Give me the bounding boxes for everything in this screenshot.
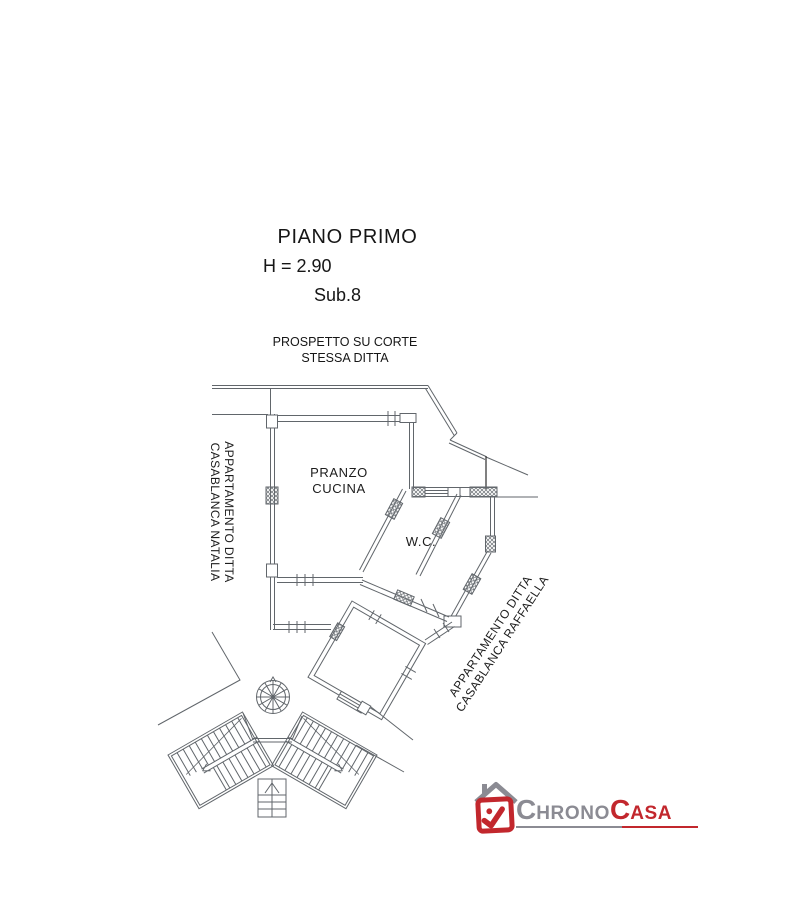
stair-right	[272, 712, 377, 809]
window-wc-left	[385, 499, 402, 520]
wall-room-right	[410, 422, 414, 489]
window-hatch-b	[470, 487, 497, 497]
label-cucina: CUCINA	[312, 481, 365, 496]
window-right-b	[463, 574, 481, 595]
house-checkmark-icon	[474, 781, 522, 835]
window-glazing	[425, 491, 448, 494]
window-hatch-a	[412, 487, 425, 497]
window-wc-bottom	[394, 590, 414, 606]
wall-room-bottom	[277, 574, 363, 586]
window-left-wall	[266, 487, 278, 504]
apartment-left-line1: APPARTAMENTO DITTA	[222, 441, 236, 582]
boundary-diagonal	[486, 457, 528, 475]
pillar-bottom-left	[267, 564, 278, 577]
window-right-a	[486, 536, 496, 552]
wall-right-vertical	[491, 497, 495, 536]
wall-room-top	[277, 411, 400, 426]
brand-casa-initial: C	[610, 794, 630, 825]
courtyard-edge-left	[158, 632, 240, 725]
floor-plan-page: PIANO PRIMO H = 2.90 Sub.8 PROSPETTO SU …	[0, 0, 787, 900]
brand-chrono-rest: HRONO	[536, 803, 610, 824]
brand-chrono-initial: C	[516, 794, 536, 825]
spiral-stair	[257, 677, 290, 714]
logo-underline-red	[622, 826, 698, 828]
courtyard-edge-right	[356, 707, 413, 772]
apartment-right-line1: APPARTAMENTO DITTA	[446, 573, 535, 699]
label-apartment-raffaella: APPARTAMENTO DITTA CASABLANCA RAFFAELLA	[441, 565, 551, 714]
brand-text: CHRONOCASA	[516, 793, 672, 827]
pillar-top-right	[400, 414, 416, 423]
stair-center	[258, 779, 286, 817]
brand-casa-rest: ASA	[630, 803, 672, 824]
apartment-left-line2: CASABLANCA NATALIA	[208, 443, 222, 582]
check-square	[478, 799, 513, 832]
label-apartment-natalia: APPARTAMENTO DITTA CASABLANCA NATALIA	[208, 441, 236, 582]
floor-plan-drawing: PRANZO CUCINA W.C. APPARTAMENTO DITTA CA…	[0, 0, 787, 900]
chronocasa-logo: CHRONOCASA	[474, 781, 710, 835]
label-pranzo: PRANZO	[310, 465, 368, 480]
boundary-top	[212, 386, 428, 389]
label-wc: W.C.	[406, 534, 437, 549]
pillar-top-left	[267, 415, 278, 428]
logo-underline-gray	[516, 826, 622, 828]
boundary-jagged-terrace	[426, 386, 487, 460]
wall-lower	[273, 621, 331, 633]
